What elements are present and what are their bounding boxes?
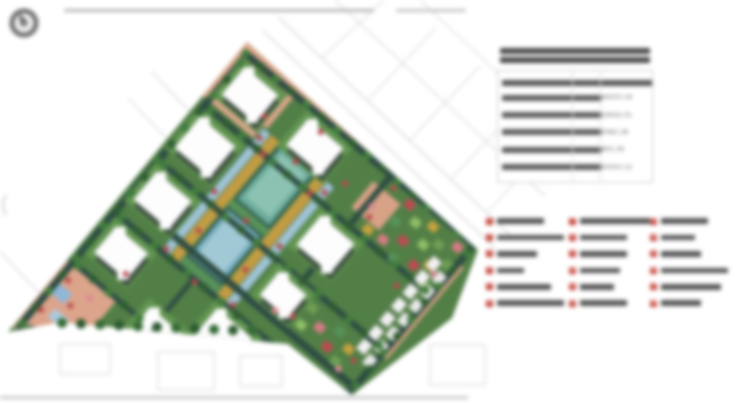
building-roof [243,67,255,79]
legend-label: 特色景观亭廊架组合小品 [580,218,650,224]
legend-label: 特色景观水景墙及跌水 [497,235,564,241]
row-unit: ㎡ [574,147,602,153]
table-column-divider [572,71,573,182]
legend-column: 7特色景观亭廊架组合小品 8亲水木栈道平台 9特色跌水景观墙 10消防登高场地 … [569,213,650,311]
plan-legend: 1主入口景观大门 2特色景观水景墙及跌水 3中心阳光草坪 4园路汀步 5儿童娱乐… [486,213,738,311]
legend-item: 11生态停车场 [569,279,650,295]
legend-item: 10消防登高场地 [569,262,650,278]
row-unit: ㎡ [574,112,602,118]
legend-item: 5儿童娱乐活动场地 [486,279,569,295]
tree-dot [57,318,67,328]
legend-item: 15特色树阵广场 [650,246,738,262]
tree-dot [134,347,146,359]
legend-label: 消防车道范围 [661,300,701,306]
legend-number-marker: 17 [650,283,657,290]
legend-item: 17垃圾分类收集点位置 [650,279,738,295]
legend-number-marker: 7 [569,218,576,225]
row-name: 铺装面积 [502,147,574,153]
legend-label: 地下车库出入口及雨棚 [497,300,564,306]
plan-sheet: 经济技术指标 主要经济技术指标一览表 名称 单位 面积 居住区总用地面积 ㎡ 4… [0,0,750,403]
tree-dot [202,361,214,373]
building-roof [319,215,331,227]
legend-item: 16自行车及电动车停车位 [650,262,738,278]
row-value: 901.26 [602,146,652,153]
table-row: 绿地面积 ㎡ 19042.51 [502,106,652,123]
rotated-block-grid [8,39,486,403]
tree-dot [190,324,200,334]
table-header-name: 名称 [502,80,574,86]
legend-number-marker: 10 [569,267,576,274]
legend-number-marker: 12 [569,300,576,307]
table-row: 道路面积 ㎡ 10253.12 [502,159,652,176]
building-roof [200,166,212,178]
tree-dot [270,375,282,387]
legend-label: 宅间组团绿化带 [580,300,627,306]
tree-dot [298,365,310,377]
legend-number-marker: 13 [650,218,657,225]
tree-dot [225,365,237,377]
building-roof [148,307,160,319]
tree-dot [133,321,143,331]
sheet-edge-line [0,396,468,399]
building-roof [278,307,290,319]
row-unit: ㎡ [574,164,602,170]
row-name: 居住区总用地面积 [502,95,574,101]
row-name: 水体面积 [502,129,574,135]
legend-number-marker: 4 [486,267,493,274]
tree-dot [157,351,169,363]
row-value: 40253.16 [602,94,652,101]
table-header-area: 面积 [602,80,652,86]
tree-dot [316,384,328,396]
tree-dot [44,328,56,340]
building-roof [215,308,227,320]
building-roof [159,218,171,230]
table-row: 铺装面积 ㎡ 901.26 [502,141,652,158]
tree-dot [209,324,219,334]
table-title: 经济技术指标 [500,48,650,54]
tree-dot [95,320,105,330]
legend-number-marker: 16 [650,267,657,274]
legend-number-marker: 14 [650,234,657,241]
legend-item: 4园路汀步 [486,262,569,278]
legend-number-marker: 3 [486,250,493,257]
table-header-unit: 单位 [574,80,602,86]
building-roof [155,172,167,184]
top-annotation-line [64,9,374,12]
legend-column: 13小区次入口广场 14健身活动区 15特色树阵广场 16自行车及电动车停车位 … [650,213,738,311]
legend-label: 中心阳光草坪 [497,251,537,257]
legend-number-marker: 18 [650,300,657,307]
legend-label: 小区次入口广场 [661,218,708,224]
table-column-divider [600,71,601,182]
tree-dot [314,379,326,391]
building-roof [246,112,258,124]
building-roof [154,357,166,369]
legend-label: 主入口景观大门 [497,218,544,224]
indicator-table: 名称 单位 面积 居住区总用地面积 ㎡ 40253.16 绿地面积 ㎡ 1904… [497,70,653,183]
building-roof [277,272,289,284]
legend-item: 9特色跌水景观墙 [569,246,650,262]
legend-number-marker: 9 [569,250,576,257]
building-roof [321,262,333,274]
table-row: 水体面积 ㎡ 3362.28 [502,124,652,141]
legend-number-marker: 5 [486,283,493,290]
tree-dot [171,323,181,333]
legend-label: 健身活动区 [661,235,695,241]
building-roof [219,355,231,367]
legend-item: 1主入口景观大门 [486,213,569,229]
tree-dot [152,322,162,332]
legend-number-marker: 6 [486,300,493,307]
north-compass-icon [12,11,36,35]
table-subtitle: 主要经济技术指标一览表 [500,57,650,63]
building-roof [198,117,210,129]
legend-item: 14健身活动区 [650,229,738,245]
row-name: 绿地面积 [502,112,574,118]
tree-dot [112,342,124,354]
legend-item: 8亲水木栈道平台 [569,229,650,245]
tree-dot [180,356,192,368]
legend-item: 18消防车道范围 [650,295,738,311]
legend-label: 消防登高场地 [580,268,620,274]
top-annotation-line-2 [396,9,466,12]
row-value: 3362.28 [602,129,652,136]
legend-label: 生态停车场 [580,284,614,290]
legend-label: 特色树阵广场 [661,251,701,257]
legend-number-marker: 8 [569,234,576,241]
tree-dot [114,320,124,330]
tree-dot [76,319,86,329]
row-unit: ㎡ [574,95,602,101]
tree-dot [66,333,78,345]
flower-dot [90,354,98,362]
row-value: 19042.51 [602,112,652,119]
legend-number-marker: 11 [569,283,576,290]
legend-column: 1主入口景观大门 2特色景观水景墙及跌水 3中心阳光草坪 4园路汀步 5儿童娱乐… [486,213,569,311]
legend-label: 自行车及电动车停车位 [661,268,728,274]
legend-item: 7特色景观亭廊架组合小品 [569,213,650,229]
row-unit: ㎡ [574,129,602,135]
legend-label: 儿童娱乐活动场地 [497,284,551,290]
building-roof [114,226,126,238]
building-roof [312,163,324,175]
legend-item: 13小区次入口广场 [650,213,738,229]
legend-item: 3中心阳光草坪 [486,246,569,262]
legend-number-marker: 1 [486,218,493,225]
legend-item: 2特色景观水景墙及跌水 [486,229,569,245]
tree-dot [228,325,238,335]
legend-number-marker: 2 [486,234,493,241]
building-roof [306,119,318,131]
table-header-row: 名称 单位 面积 [502,76,652,89]
row-name: 道路面积 [502,164,574,170]
tree-dot [180,351,192,363]
tree-dot [293,379,305,391]
legend-number-marker: 15 [650,250,657,257]
legend-label: 特色跌水景观墙 [580,251,627,257]
tree-dot [165,338,177,350]
legend-item: 6地下车库出入口及雨棚 [486,295,569,311]
legend-item: 12宅间组团绿化带 [569,295,650,311]
tree-dot [247,326,257,336]
row-value: 10253.12 [602,164,652,171]
table-title-block: 经济技术指标 主要经济技术指标一览表 [500,48,650,66]
parcel [0,30,500,403]
legend-label: 亲水木栈道平台 [580,235,627,241]
tree-dot [248,370,260,382]
table-row: 居住区总用地面积 ㎡ 40253.16 [502,89,652,106]
legend-label: 园路汀步 [497,268,524,274]
legend-label: 垃圾分类收集点位置 [661,284,721,290]
